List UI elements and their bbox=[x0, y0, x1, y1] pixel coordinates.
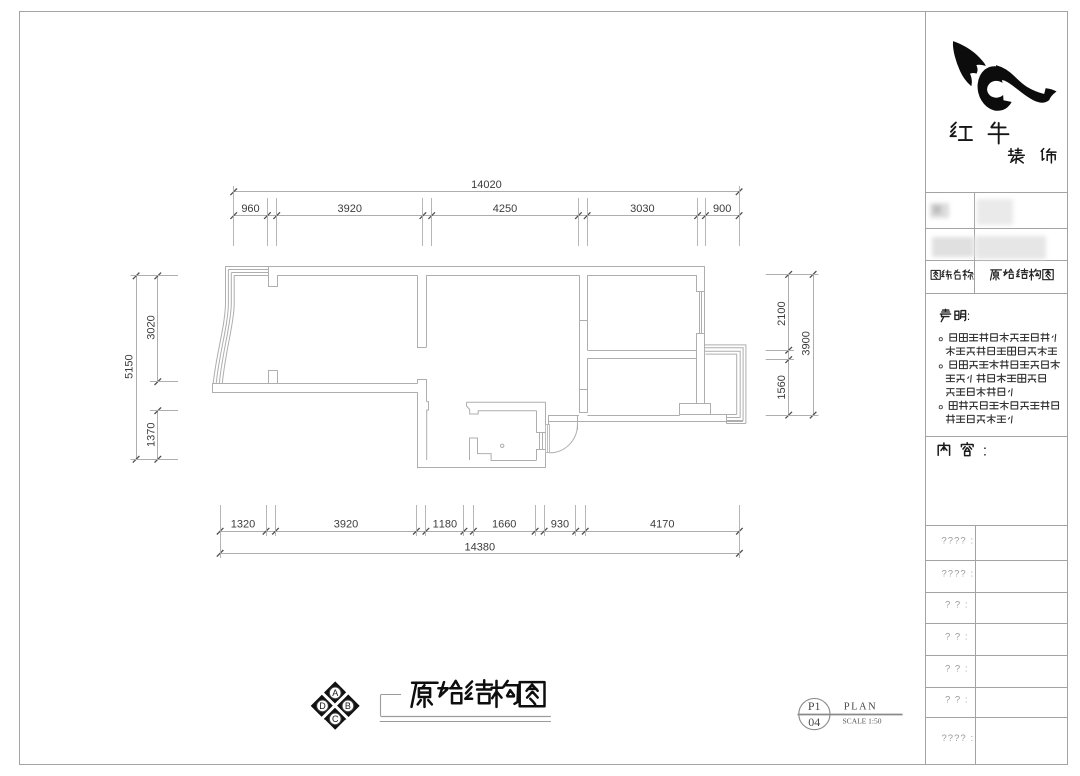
svg-text:04: 04 bbox=[808, 715, 820, 729]
svg-text:????: ???? bbox=[942, 536, 967, 547]
svg-text:? ? :: ? ? : bbox=[945, 664, 969, 675]
svg-text::: : bbox=[971, 536, 974, 547]
svg-text:3020: 3020 bbox=[145, 315, 157, 339]
svg-text:1560: 1560 bbox=[776, 375, 788, 399]
svg-text:D: D bbox=[319, 701, 326, 711]
svg-text:? ? :: ? ? : bbox=[945, 695, 969, 706]
svg-text:4170: 4170 bbox=[650, 519, 674, 531]
svg-text:????: ???? bbox=[942, 733, 967, 744]
svg-text:PLAN: PLAN bbox=[844, 702, 877, 713]
svg-text:4250: 4250 bbox=[493, 203, 517, 215]
svg-text:? ? :: ? ? : bbox=[945, 600, 969, 611]
svg-text:5150: 5150 bbox=[124, 354, 136, 378]
svg-text:1370: 1370 bbox=[145, 422, 157, 446]
svg-text::: : bbox=[971, 271, 974, 283]
svg-text:930: 930 bbox=[551, 519, 569, 531]
svg-text:960: 960 bbox=[241, 203, 259, 215]
svg-text:C: C bbox=[332, 714, 339, 724]
svg-text::: : bbox=[971, 733, 974, 744]
svg-text:1180: 1180 bbox=[433, 519, 457, 531]
svg-text:1320: 1320 bbox=[231, 519, 255, 531]
svg-text:900: 900 bbox=[713, 203, 731, 215]
svg-text:????: ???? bbox=[942, 569, 967, 580]
svg-text:3920: 3920 bbox=[338, 203, 362, 215]
svg-text:SCALE 1:50: SCALE 1:50 bbox=[843, 717, 882, 726]
svg-text:3900: 3900 bbox=[801, 331, 813, 355]
svg-text:1660: 1660 bbox=[492, 519, 516, 531]
svg-text:14380: 14380 bbox=[465, 541, 496, 553]
svg-text:2100: 2100 bbox=[776, 301, 788, 325]
svg-text:A: A bbox=[332, 688, 338, 698]
svg-text::: : bbox=[971, 569, 974, 580]
svg-text:? ? :: ? ? : bbox=[945, 632, 969, 643]
svg-text:B: B bbox=[345, 701, 351, 711]
svg-text:3920: 3920 bbox=[334, 519, 358, 531]
svg-text:3030: 3030 bbox=[630, 203, 654, 215]
svg-text:P1: P1 bbox=[808, 699, 821, 713]
svg-text:14020: 14020 bbox=[471, 179, 502, 191]
svg-text::: : bbox=[983, 443, 987, 460]
svg-text::: : bbox=[967, 309, 970, 323]
